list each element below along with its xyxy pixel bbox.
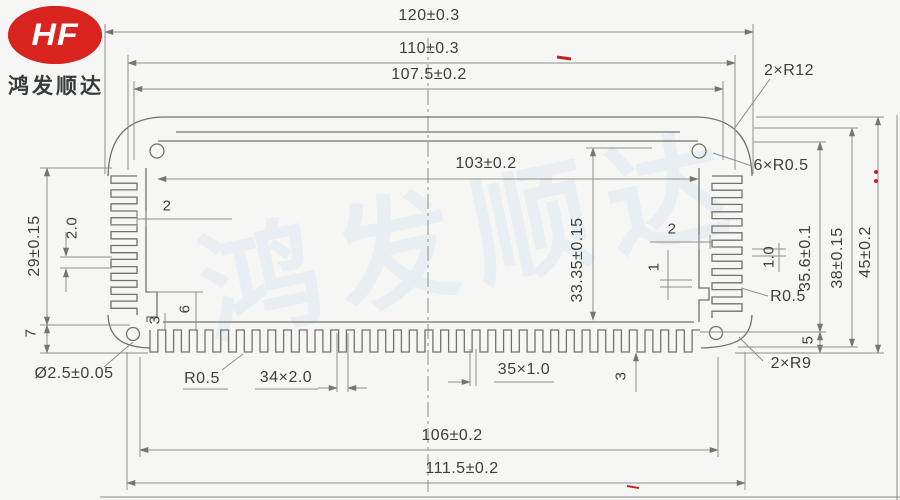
dim-bottom-fin-count: 35×1.0 <box>498 361 550 379</box>
logo-ellipse: HF <box>8 6 102 64</box>
profile-outline <box>108 117 752 352</box>
logo-brand-text: HF <box>31 17 78 53</box>
dim-left-fin-zone: 29±0.15 <box>26 215 44 276</box>
dim-right-wall: 2 <box>668 221 677 238</box>
dim-fillets-top: 6×R0.5 <box>753 157 808 175</box>
dimension-lines <box>40 24 884 490</box>
screw-boss-top-left <box>150 144 164 158</box>
technical-drawing-page: 鸿发顺达 <box>0 0 900 500</box>
dim-step: 3 <box>147 316 164 325</box>
dim-body-height: 38±0.15 <box>829 227 847 288</box>
dim-left-wall: 2 <box>163 198 172 215</box>
left-heatsink-fins <box>111 176 137 315</box>
dim-left-corner: 7 <box>23 329 40 338</box>
dim-slot-width: 103±0.2 <box>455 155 516 173</box>
dim-left-fin-pitch: 2.0 <box>64 217 81 239</box>
dim-outer-width: 110±0.3 <box>399 40 459 58</box>
dim-fin-gap: 1.0 <box>761 246 778 268</box>
dim-bottom-fin-span: 106±0.2 <box>421 427 482 445</box>
screw-boss-bottom-left <box>127 328 140 341</box>
dim-corner-radius-bottom: 2×R9 <box>771 355 812 373</box>
dim-overall-height: 45±0.2 <box>857 226 875 278</box>
dim-hole-diameter: Ø2.5±0.05 <box>34 365 113 383</box>
screw-boss-top-right <box>692 144 706 158</box>
right-inner-wall <box>699 168 709 322</box>
bottom-heatsink-fins <box>150 330 700 352</box>
company-logo: HF 鸿发顺达 <box>8 6 118 100</box>
dim-bottom-fin-pitch: 34×2.0 <box>260 369 312 387</box>
dim-bottom-fin-height: 3 <box>613 372 630 381</box>
right-heatsink-fins <box>712 176 742 318</box>
dim-base: 5 <box>800 336 817 345</box>
dim-bottom-fin-radius: R0.5 <box>184 370 220 388</box>
dim-overall-width: 120±0.3 <box>398 7 459 25</box>
dim-inner-height: 35.6±0.1 <box>797 225 815 291</box>
dim-inner-width: 107.5±0.2 <box>391 66 467 84</box>
dim-bottom-outer: 111.5±0.2 <box>425 460 498 478</box>
company-name: 鸿发顺达 <box>8 70 118 100</box>
left-inner-wall <box>146 168 157 322</box>
screw-boss-bottom-right <box>710 327 723 340</box>
dim-right-rib: 1 <box>646 263 663 272</box>
dim-cavity-depth: 33.35±0.15 <box>569 218 587 303</box>
dim-step-depth: 6 <box>177 305 194 314</box>
dim-corner-radius-top: 2×R12 <box>764 62 814 80</box>
